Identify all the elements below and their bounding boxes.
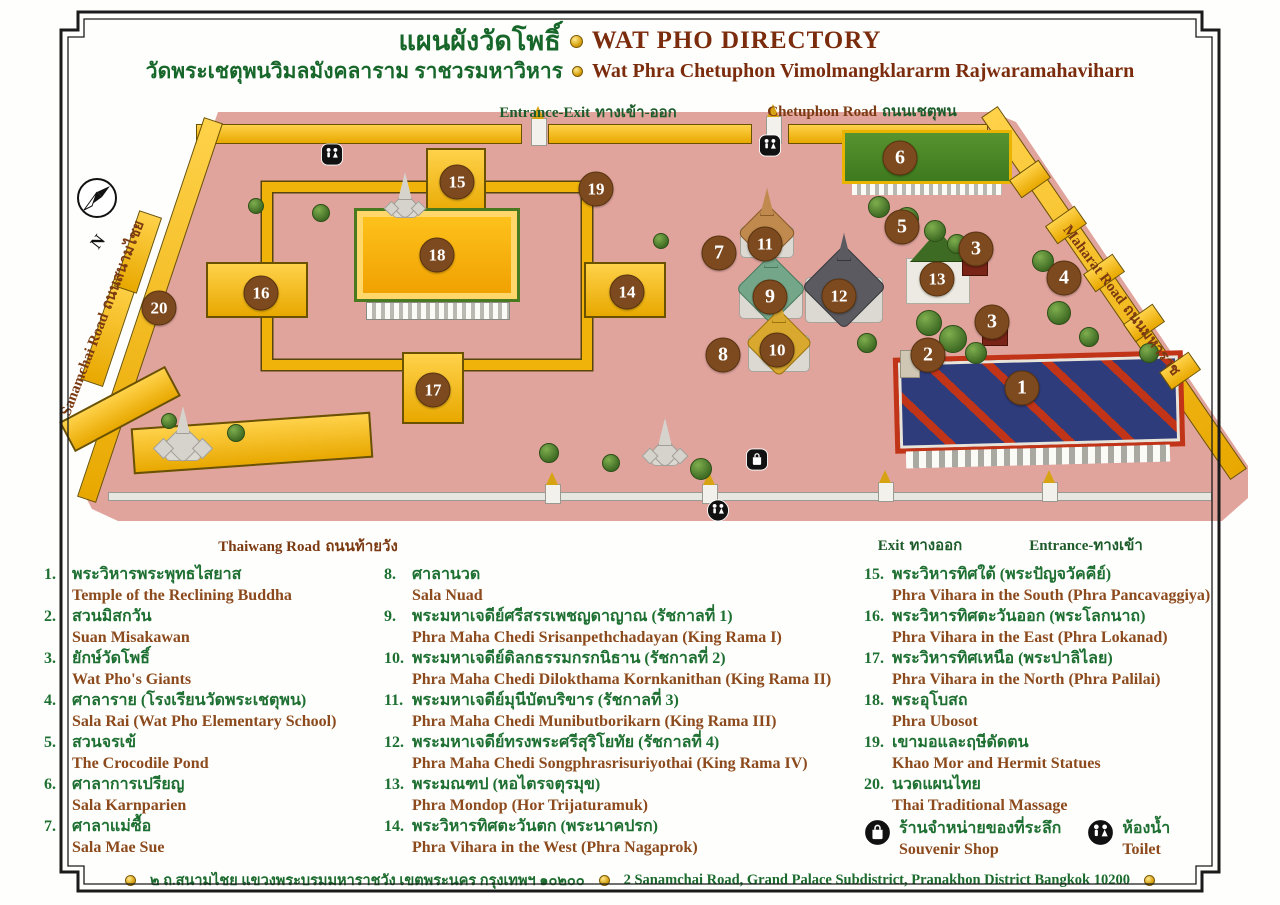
legend-english: Phra Mondop (Hor Trijaturamuk)	[412, 797, 648, 814]
legend-english: Suan Misakawan	[72, 629, 190, 646]
gate-spire	[546, 472, 558, 485]
legend-english: Sala Nuad	[412, 587, 483, 604]
road-label-thai: ทางเข้า	[1093, 538, 1142, 554]
legend-english: Phra Vihara in the South (Phra Pancavagg…	[892, 587, 1210, 604]
tree-icon	[916, 310, 942, 336]
legend-thai: ห้องน้ำ	[1122, 820, 1170, 837]
legend-thai: พระอุโบสถ	[892, 692, 968, 709]
tree-icon	[965, 342, 987, 364]
legend-item-5: 5.สวนจรเข้The Crocodile Pond	[44, 733, 380, 774]
footer-address-thai: ๒ ถ.สนามไชย แขวงพระบรมมหาราชวัง เขตพระนค…	[150, 869, 585, 892]
legend-item-8: 8.ศาลานวดSala Nuad	[384, 565, 870, 606]
sala-karnparien-6	[842, 130, 1012, 184]
legend-thai: ศาลานวด	[412, 566, 480, 583]
compass-icon: N	[72, 176, 122, 231]
tree-icon	[1079, 327, 1099, 347]
legend-number: 6.	[44, 775, 72, 796]
tree-icon	[690, 458, 712, 480]
chedi-12-spire	[837, 233, 851, 261]
legend-number: 13.	[384, 775, 412, 796]
wall-segment	[548, 124, 752, 144]
building-base	[852, 184, 1002, 195]
legend-amenity-toilet: ห้องน้ำToilet	[1087, 819, 1170, 860]
footer-address: ๒ ถ.สนามไชย แขวงพระบรมมหาราชวัง เขตพระนค…	[0, 869, 1280, 892]
legend-english: Temple of the Reclining Buddha	[72, 587, 292, 604]
road-label-exit-bottom: Exitทางออก	[878, 533, 962, 557]
title-block: แผนผังวัดโพธิ์ WAT PHO DIRECTORY วัดพระเ…	[0, 26, 1280, 86]
legend-item-6: 6.ศาลาการเปรียญSala Karnparien	[44, 775, 380, 816]
footer-address-english: 2 Sanamchai Road, Grand Palace Subdistri…	[624, 872, 1130, 889]
legend-item-1: 1.พระวิหารพระพุทธไสยาสTemple of the Recl…	[44, 565, 380, 606]
map-marker-12: 12	[822, 279, 857, 314]
legend-column-2: 8.ศาลานวดSala Nuad9.พระมหาเจดีย์ศรีสรรเพ…	[384, 565, 870, 859]
tree-icon	[312, 204, 330, 222]
legend-item-18: 18.พระอุโบสถPhra Ubosot	[864, 691, 1194, 732]
tree-icon	[227, 424, 245, 442]
tree-icon	[161, 413, 177, 429]
legend-item-9: 9.พระมหาเจดีย์ศรีสรรเพชญดาญาณ (รัชกาลที่…	[384, 607, 870, 648]
road-label-thai: ถนนเชตุพน	[882, 104, 957, 120]
legend-item-20: 20.นวดแผนไทยThai Traditional Massage	[864, 775, 1194, 816]
legend-number: 12.	[384, 733, 412, 754]
tree-icon	[248, 198, 264, 214]
legend-english: Phra Vihara in the North (Phra Palilai)	[892, 671, 1160, 688]
legend-number: 16.	[864, 607, 892, 628]
gate-icon	[545, 484, 561, 504]
legend-thai: สวนจรเข้	[72, 734, 136, 751]
legend-number: 17.	[864, 649, 892, 670]
legend-amenity-text: ร้านจำหน่ายของที่ระลึกSouvenir Shop	[899, 819, 1061, 860]
legend-english: Sala Karnparien	[72, 797, 186, 814]
gold-dot-icon	[125, 875, 136, 886]
gold-dot-icon	[570, 35, 583, 48]
map-marker-11: 11	[748, 227, 783, 262]
legend-english: Toilet	[1122, 841, 1161, 858]
map-marker-10: 10	[760, 333, 795, 368]
gold-dot-icon	[1144, 875, 1155, 886]
legend-number: 9.	[384, 607, 412, 628]
road-label-thai: ทางออก	[909, 538, 962, 554]
gate-spire	[1043, 470, 1055, 483]
legend-thai: ศาลาการเปรียญ	[72, 776, 184, 793]
map-marker-15: 15	[440, 165, 475, 200]
legend-thai: พระมหาเจดีย์มุนีบัตบริขาร (รัชกาลที่ 3)	[412, 692, 679, 709]
road-label-english: Exit	[878, 538, 905, 554]
gold-dot-icon	[599, 875, 610, 886]
legend-thai: ศาลาแม่ซื้อ	[72, 818, 151, 835]
legend-item-16: 16.พระวิหารทิศตะวันออก (พระโลกนาถ)Phra V…	[864, 607, 1194, 648]
legend-thai: พระมณฑป (หอไตรจตุรมุข)	[412, 776, 600, 793]
title-line-2: วัดพระเชตุพนวิมลมังคลาราม ราชวรมหาวิหาร …	[0, 56, 1280, 86]
legend-number: 18.	[864, 691, 892, 712]
legend-english: Sala Mae Sue	[72, 839, 164, 856]
title-line-1: แผนผังวัดโพธิ์ WAT PHO DIRECTORY	[0, 26, 1280, 56]
map-marker-5: 5	[885, 210, 920, 245]
tree-icon	[924, 220, 946, 242]
road-label-english: Thaiwang Road	[218, 539, 320, 555]
legend-number: 19.	[864, 733, 892, 754]
gate-spire	[879, 470, 891, 483]
souvenir-icon	[746, 449, 768, 476]
map-marker-18: 18	[420, 238, 455, 273]
tree-icon	[857, 333, 877, 353]
legend-item-11: 11.พระมหาเจดีย์มุนีบัตบริขาร (รัชกาลที่ …	[384, 691, 870, 732]
legend-number: 1.	[44, 565, 72, 586]
map-marker-1: 1	[1005, 371, 1040, 406]
legend-item-19: 19.เขามอและฤษีดัดตนKhao Mor and Hermit S…	[864, 733, 1194, 774]
legend-thai: ร้านจำหน่ายของที่ระลึก	[899, 820, 1061, 837]
map-marker-8: 8	[706, 338, 741, 373]
map-marker-6: 6	[883, 141, 918, 176]
legend-thai: พระมหาเจดีย์ศรีสรรเพชญดาญาณ (รัชกาลที่ 1…	[412, 608, 733, 625]
tree-icon	[868, 196, 890, 218]
legend-english: Phra Ubosot	[892, 713, 978, 730]
legend-number: 15.	[864, 565, 892, 586]
legend-thai: พระวิหารทิศตะวันออก (พระโลกนาถ)	[892, 608, 1145, 625]
legend-english: Phra Vihara in the West (Phra Nagaprok)	[412, 839, 698, 856]
legend-item-12: 12.พระมหาเจดีย์ทรงพระศรีสุริโยทัย (รัชกา…	[384, 733, 870, 774]
road-label-thai: ทางเข้า-ออก	[595, 105, 677, 121]
chedi-cluster-spire	[176, 406, 190, 434]
legend-english: Wat Pho's Giants	[72, 671, 191, 688]
legend-english: Sala Rai (Wat Pho Elementary School)	[72, 713, 336, 730]
legend-thai: พระวิหารทิศตะวันตก (พระนาคปรก)	[412, 818, 658, 835]
legend-english: Phra Vihara in the East (Phra Lokanad)	[892, 629, 1168, 646]
legend-english: Souvenir Shop	[899, 841, 999, 858]
legend-thai: นวดแผนไทย	[892, 776, 981, 793]
map-marker-4: 4	[1047, 261, 1082, 296]
legend-column-1: 1.พระวิหารพระพุทธไสยาสTemple of the Recl…	[44, 565, 380, 859]
map-marker-9: 9	[753, 280, 788, 315]
legend-number: 7.	[44, 817, 72, 838]
map-marker-3-b: 3	[975, 305, 1010, 340]
legend-number: 10.	[384, 649, 412, 670]
legend-number: 8.	[384, 565, 412, 586]
road-label-english: Chetuphon Road	[767, 104, 877, 120]
legend-item-3: 3.ยักษ์วัดโพธิ์Wat Pho's Giants	[44, 649, 380, 690]
tree-icon	[653, 233, 669, 249]
legend-english: Phra Maha Chedi Songphrasrisuriyothai (K…	[412, 755, 808, 772]
road-label-thai: ถนนท้ายวัง	[325, 539, 397, 555]
toilet-icon	[321, 144, 343, 171]
legend-thai: พระมหาเจดีย์ทรงพระศรีสุริโยทัย (รัชกาลที…	[412, 734, 719, 751]
legend-english: Thai Traditional Massage	[892, 797, 1067, 814]
legend-item-2: 2.สวนมิสกวันSuan Misakawan	[44, 607, 380, 648]
legend-number: 11.	[384, 691, 412, 712]
map-marker-13: 13	[920, 262, 955, 297]
legend-english: Phra Maha Chedi Munibutborikarn (King Ra…	[412, 713, 777, 730]
legend-number: 3.	[44, 649, 72, 670]
chedi-cluster-spire	[658, 418, 672, 446]
gate-icon	[1042, 482, 1058, 502]
legend-thai: พระวิหารทิศเหนือ (พระปาลิไลย)	[892, 650, 1113, 667]
road-label-entrance-bottom: Entrance-ทางเข้า	[1029, 533, 1143, 557]
legend-item-13: 13.พระมณฑป (หอไตรจตุรมุข)Phra Mondop (Ho…	[384, 775, 870, 816]
map-marker-19: 19	[579, 172, 614, 207]
tree-icon	[1047, 301, 1071, 325]
legend-amenity-souvenir: ร้านจำหน่ายของที่ระลึกSouvenir Shop	[864, 819, 1061, 860]
legend-number: 14.	[384, 817, 412, 838]
legend-thai: พระมหาเจดีย์ดิลกธรรมกรกนิธาน (รัชกาลที่ …	[412, 650, 726, 667]
road-label-english: Entrance-Exit	[499, 105, 590, 121]
map-marker-16: 16	[244, 276, 279, 311]
legend-thai: ยักษ์วัดโพธิ์	[72, 650, 150, 667]
legend-thai: พระวิหารพระพุทธไสยาส	[72, 566, 241, 583]
map-marker-7: 7	[702, 236, 737, 271]
souvenir-icon	[864, 819, 891, 851]
road-label-thaiwang-road: Thaiwang Roadถนนท้ายวัง	[218, 534, 398, 558]
legend-english: Khao Mor and Hermit Statues	[892, 755, 1101, 772]
road-label-entrance-exit-top: Entrance-Exitทางเข้า-ออก	[499, 100, 676, 124]
legend-thai: เขามอและฤษีดัดตน	[892, 734, 1029, 751]
subtitle-thai: วัดพระเชตุพนวิมลมังคลาราม ราชวรมหาวิหาร	[146, 56, 563, 86]
tree-icon	[602, 454, 620, 472]
legend-thai: พระวิหารทิศใต้ (พระปัญจวัคคีย์)	[892, 566, 1111, 583]
map-marker-3-a: 3	[959, 232, 994, 267]
legend-number: 4.	[44, 691, 72, 712]
map-marker-2: 2	[911, 338, 946, 373]
map-marker-20: 20	[142, 291, 177, 326]
legend-item-14: 14.พระวิหารทิศตะวันตก (พระนาคปรก)Phra Vi…	[384, 817, 870, 858]
chedi-11-spire	[760, 188, 774, 216]
legend-thai: ศาลาราย (โรงเรียนวัดพระเชตุพน)	[72, 692, 306, 709]
title-english: WAT PHO DIRECTORY	[592, 26, 882, 56]
legend-amenities: ร้านจำหน่ายของที่ระลึกSouvenir Shop ห้อง…	[864, 819, 1194, 860]
legend-english: Phra Maha Chedi Dilokthama Kornkanithan …	[412, 671, 831, 688]
subtitle-english: Wat Phra Chetuphon Vimolmangklararm Rajw…	[592, 56, 1134, 86]
map-marker-17: 17	[416, 373, 451, 408]
toilet-icon	[1087, 819, 1114, 851]
legend-item-4: 4.ศาลาราย (โรงเรียนวัดพระเชตุพน)Sala Rai…	[44, 691, 380, 732]
road-label-chetuphon-road: Chetuphon Roadถนนเชตุพน	[767, 99, 956, 123]
road-label-english: Entrance-	[1029, 538, 1093, 554]
legend-english: Phra Maha Chedi Srisanpethchadayan (King…	[412, 629, 782, 646]
legend-item-7: 7.ศาลาแม่ซื้อSala Mae Sue	[44, 817, 380, 858]
gate-icon	[878, 482, 894, 502]
tree-icon	[539, 443, 559, 463]
wall-segment	[196, 124, 522, 144]
legend-item-10: 10.พระมหาเจดีย์ดิลกธรรมกรกนิธาน (รัชกาลท…	[384, 649, 870, 690]
wat-pho-directory-poster: แผนผังวัดโพธิ์ WAT PHO DIRECTORY วัดพระเ…	[0, 0, 1280, 905]
legend-item-15: 15.พระวิหารทิศใต้ (พระปัญจวัคคีย์)Phra V…	[864, 565, 1194, 606]
map-marker-14: 14	[610, 275, 645, 310]
legend-thai: สวนมิสกวัน	[72, 608, 152, 625]
title-thai: แผนผังวัดโพธิ์	[399, 26, 561, 56]
legend-column-3: 15.พระวิหารทิศใต้ (พระปัญจวัคคีย์)Phra V…	[864, 565, 1194, 860]
legend-number: 5.	[44, 733, 72, 754]
gold-dot-icon	[572, 66, 583, 77]
legend-number: 2.	[44, 607, 72, 628]
legend-english: The Crocodile Pond	[72, 755, 209, 772]
ubosot-base	[366, 302, 510, 320]
legend-number: 20.	[864, 775, 892, 796]
toilet-icon	[759, 135, 781, 162]
legend-amenity-text: ห้องน้ำToilet	[1122, 819, 1170, 860]
legend-item-17: 17.พระวิหารทิศเหนือ (พระปาลิไลย)Phra Vih…	[864, 649, 1194, 690]
toilet-icon	[707, 500, 729, 527]
